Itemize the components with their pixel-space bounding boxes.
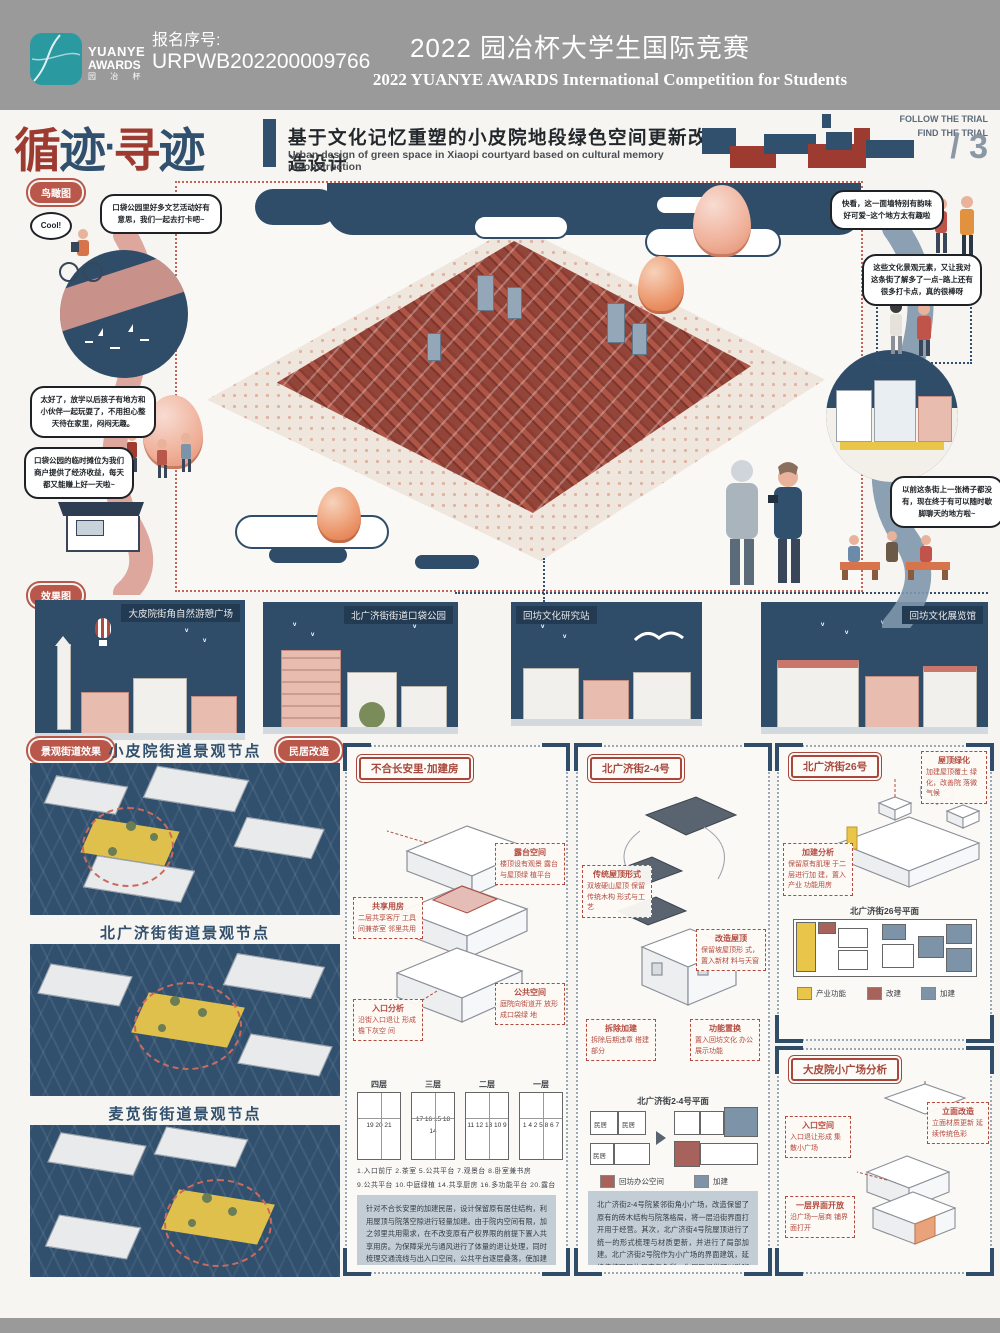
logo-line3: 园 冶 杯 — [88, 73, 146, 81]
sky-lantern — [638, 256, 684, 314]
logo-wordmark: YUANYE AWARDS 园 冶 杯 — [88, 45, 146, 82]
cloud — [473, 215, 569, 239]
analysis-text-infill: 针对不合长安里的加建民居，设计保留原有居住结构，利用屋顶与院落空隙进行轻量加建。… — [357, 1195, 556, 1265]
plan-title: 北广济街2-4号平面 — [578, 1095, 768, 1107]
annotation-traditional-roof: 传统屋顶形式 双坡硬山屋顶 保留传统木构 形式与工艺 — [582, 865, 652, 918]
photographer-figures — [712, 455, 817, 590]
rendering-label: 北广济街街道口袋公园 — [344, 606, 453, 624]
annotation-public-space: 公共空间 庭院向街道开 放形成口袋绿 地 — [495, 983, 565, 1025]
brand-char: 迹 — [59, 124, 104, 179]
focus-circle — [134, 982, 242, 1070]
competition-poster: YUANYE AWARDS 园 冶 杯 报名序号: URPWB202200009… — [0, 0, 1000, 1333]
registration-number: 报名序号: URPWB202200009766 — [152, 26, 370, 74]
sky-lantern — [317, 487, 361, 543]
panel-header: 北广济街26号 — [791, 755, 879, 778]
analysis-panel-square: 大皮院小广场分析 入口空间 入口退让形成 集散小广场 立面改造 立面材质更新 延… — [777, 1048, 992, 1274]
analysis-panel-no26: 北广济街26号 加建分析 保留原有肌理 于二层进行加 建，置入产业 功能用房 屋… — [777, 745, 992, 1041]
annotation-terrace: 露台空间 楼顶设有观景 露台与屋顶绿 植平台 — [495, 843, 565, 885]
cloud — [235, 515, 389, 549]
floor-plan: 三层 17 16 15 18 14 — [411, 1079, 455, 1160]
speech-bubble-cool: Cool! — [30, 212, 72, 240]
floor-plans-row: 四层 19 20 21 三层 17 16 15 18 14 二层 11 12 1… — [357, 1079, 563, 1160]
speech-bubble-6: 以前这条街上一张椅子都没有，现在终于有可以随时歇脚聊天的地方啦~ — [890, 476, 1000, 528]
rendering-panel-1: 大皮院街角自然游憩广场 ᵛᵛ — [35, 600, 245, 740]
walking-figures — [882, 300, 942, 362]
transform-arrow — [656, 1131, 666, 1145]
floor-plan: 二层 11 12 13 10 9 — [465, 1079, 509, 1160]
section-title-beiguangji: 北广济街街道景观节点 — [30, 922, 340, 943]
speech-bubble-3: 口袋公园的临时摊位为我们商户提供了经济收益，每天都又能赚上好一天啦~ — [24, 447, 134, 499]
speech-bubble-2: 太好了，放学以后孩子有地方和小伙伴一起玩耍了，不用担心整天待在家里，闷闷无趣。 — [30, 386, 156, 438]
analysis-text-courtyard2: 北广济街2-4号院紧邻街角小广场，改造保留了原有的砖木结构与院落格局，将一层沿街… — [588, 1191, 758, 1265]
project-brand-title: 循迹·寻迹 — [14, 112, 203, 181]
competition-title-en: 2022 YUANYE AWARDS International Competi… — [310, 70, 910, 90]
floor-plan: 四层 19 20 21 — [357, 1079, 401, 1160]
page-number: / 3 — [900, 128, 988, 167]
section-title-maixian: 麦苋街街道景观节点 — [30, 1103, 340, 1124]
floor-plan: 一层 1 4 2 5 8 6 7 — [519, 1079, 563, 1160]
badge-dwelling-reno: 民居改造 — [278, 740, 340, 761]
seagull-icon — [631, 624, 687, 650]
tower-block — [477, 275, 494, 311]
bench-figures — [836, 528, 956, 582]
annotation-entry-space: 入口空间 入口退让形成 集散小广场 — [785, 1116, 851, 1158]
brand-char: 寻 — [113, 124, 158, 179]
annotation-addition: 加建分析 保留原有肌理 于二层进行加 建，置入产业 功能用房 — [783, 843, 853, 896]
panel-header: 北广济街2-4号 — [590, 757, 682, 780]
tree — [359, 702, 385, 728]
legend-office: 回坊办公空间 — [600, 1175, 664, 1188]
annotation-demolish: 拆除加建 拆除后期违章 搭建部分 — [586, 1019, 656, 1061]
annotation-share-room: 共享用房 二层共享客厅 工具间兼茶室 邻里共用 — [353, 897, 423, 939]
brand-char: · — [104, 130, 113, 165]
focus-circle — [82, 807, 174, 887]
tower-block — [427, 333, 441, 361]
annotation-facade: 立面改造 立面材质更新 延续传统色彩 — [927, 1102, 989, 1144]
street-node-panel-2 — [30, 944, 340, 1096]
legend-addition: 加建 — [694, 1175, 728, 1188]
annotation-function-swap: 功能置换 置入回坊文化 办公展示功能 — [690, 1019, 760, 1061]
street-node-panel-1 — [30, 763, 340, 915]
tower-block — [507, 287, 522, 319]
panel-header: 不合长安里·加建房 — [359, 757, 471, 780]
annotation-green-roof: 屋顶绿化 加建屋顶覆土 绿化，改善院 落微气候 — [921, 751, 987, 804]
annotation-renovated-roof: 改造屋顶 保留坡屋顶形 式，置入新材 料与天窗 — [696, 929, 766, 971]
registration-label: 报名序号: — [152, 26, 370, 50]
inset-circle-street — [826, 350, 958, 482]
plan-title: 北广济街26号平面 — [779, 905, 990, 917]
project-title-en: Urban design of green space in Xiaopi co… — [288, 149, 708, 173]
speech-bubble-1: 口袋公园里好多文艺活动好有意思，我们一起去打卡吧~ — [100, 194, 222, 234]
competition-title-cn: 2022 园冶杯大学生国际竞赛 — [380, 28, 780, 65]
annotation-ground-interface: 一层界面开放 沿广场一层商 铺界面打开 — [785, 1196, 855, 1238]
plan-legend-row2: 9.公共平台 10.中庭绿植 14.共享厨房 16.多功能平台 20.露台 — [357, 1179, 557, 1189]
tower-block — [607, 303, 625, 343]
rendering-label: 回坊文化展览馆 — [902, 606, 983, 624]
slogan-line1: FOLLOW THE TRIAL — [860, 113, 988, 127]
brand-char: 循 — [14, 124, 59, 179]
tower-block — [632, 323, 647, 355]
yuanye-logo-icon — [30, 33, 82, 85]
analysis-panel-infill: 不合长安里·加建房 共享用房 二层共享客厅 工具间兼茶室 邻里共用 — [345, 745, 568, 1274]
brand-char: 迹 — [158, 124, 203, 179]
street-node-panel-3 — [30, 1125, 340, 1277]
sky-blob — [255, 189, 337, 225]
dotted-connector — [543, 558, 545, 602]
analysis-panel-courtyard2: 北广济街2-4号 传统屋顶形式 双坡硬山屋顶 保留传统木构 形式与工艺 — [576, 745, 770, 1274]
cloud — [269, 547, 347, 563]
rendering-label: 大皮院街角自然游憩广场 — [121, 604, 240, 622]
header-band: YUANYE AWARDS 园 冶 杯 报名序号: URPWB202200009… — [0, 0, 1000, 110]
section-badge-birdseye: 鸟瞰图 — [30, 182, 82, 203]
focus-circle — [164, 1179, 272, 1267]
rendering-panel-2: 北广济街街道口袋公园 ᵛᵛᵛ — [263, 602, 458, 734]
legend-rebuild: 改建 — [867, 987, 901, 1000]
annotation-entry: 入口分析 沿街入口退让 形成檐下灰空 间 — [353, 999, 423, 1041]
speech-bubble-4: 快看，这一面墙特别有韵味好可爱~这个地方太有趣啦 — [830, 190, 944, 230]
sky-band — [327, 183, 861, 235]
vendor-booth — [58, 502, 144, 552]
speech-bubble-5: 这些文化景观元素，又让我对这条街了解多了一点~路上还有很多打卡点，真的很棒呀 — [862, 254, 982, 306]
legend-addition: 加建 — [921, 987, 955, 1000]
cloud — [415, 555, 479, 569]
legend-industry: 产业功能 — [797, 987, 846, 1000]
plan-legend-row1: 1.入口前厅 2.茶室 5.公共平台 7.观景台 8.卧室兼书房 — [357, 1165, 557, 1175]
hot-air-balloon — [95, 618, 111, 638]
rendering-label: 回坊文化研究站 — [516, 606, 597, 624]
panel-header: 大皮院小广场分析 — [791, 1058, 899, 1081]
logo-line1: YUANYE — [88, 45, 146, 59]
colored-plan — [793, 919, 977, 977]
title-divider-bar — [263, 119, 276, 167]
footer-band — [0, 1318, 1000, 1333]
logo-line2: AWARDS — [88, 59, 146, 72]
rendering-panel-3: 回坊文化研究站 ᵛᵛ — [511, 602, 702, 726]
